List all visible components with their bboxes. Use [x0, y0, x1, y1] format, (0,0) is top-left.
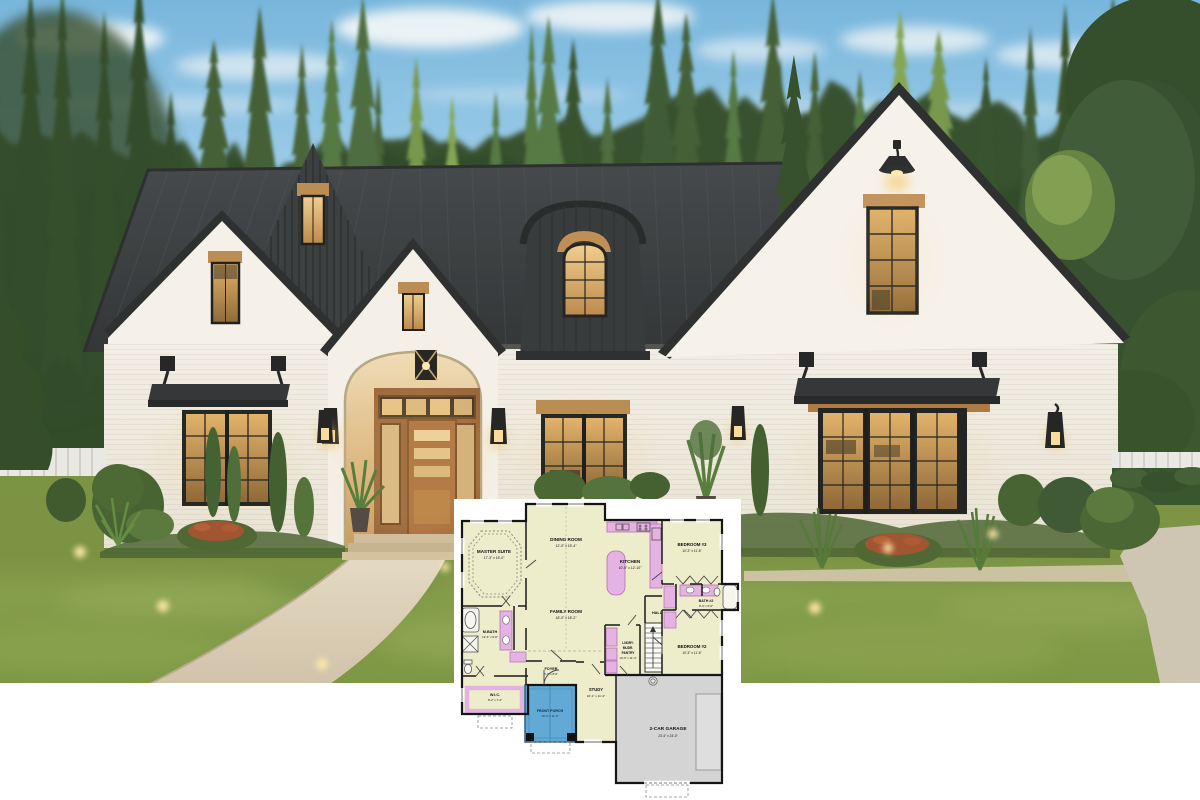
svg-text:BEDROOM #3: BEDROOM #3	[677, 542, 707, 547]
svg-text:12'-0" x 15'-4": 12'-0" x 15'-4"	[556, 544, 578, 548]
svg-text:LNDRY.: LNDRY.	[622, 641, 634, 645]
svg-text:10'-1" x 11'-4": 10'-1" x 11'-4"	[587, 694, 605, 698]
svg-text:PANTRY: PANTRY	[622, 651, 636, 655]
svg-text:W.I.C.: W.I.C.	[490, 693, 500, 697]
svg-text:FRONT PORCH: FRONT PORCH	[537, 709, 564, 713]
svg-text:BEDROOM #2: BEDROOM #2	[677, 644, 707, 649]
svg-text:MASTER SUITE: MASTER SUITE	[477, 549, 511, 554]
svg-text:10'-0" x 11'-0": 10'-0" x 11'-0"	[542, 714, 559, 718]
svg-text:10'-3" x 11'-6": 10'-3" x 11'-6"	[682, 651, 701, 655]
svg-text:13'-4" x 9'-8": 13'-4" x 9'-8"	[482, 635, 498, 639]
svg-text:8'-2" x 7'-4": 8'-2" x 7'-4"	[488, 698, 502, 702]
svg-text:9'-4" x 5'-0": 9'-4" x 5'-0"	[699, 604, 713, 608]
svg-text:MUDR.: MUDR.	[623, 646, 634, 650]
svg-text:DINING ROOM: DINING ROOM	[550, 537, 582, 542]
svg-text:STUDY: STUDY	[589, 687, 603, 692]
svg-text:10'-3" x 11'-6": 10'-3" x 11'-6"	[682, 549, 701, 553]
svg-text:M.BATH: M.BATH	[483, 630, 498, 634]
svg-text:18'-0" x 18'-2": 18'-0" x 18'-2"	[556, 616, 578, 620]
svg-text:BATH #2: BATH #2	[699, 599, 714, 603]
svg-text:HALL: HALL	[652, 611, 663, 615]
svg-text:17'-3" x 15'-0": 17'-3" x 15'-0"	[484, 556, 506, 560]
svg-text:10'-0" x 12'-10": 10'-0" x 12'-10"	[619, 566, 643, 570]
svg-text:10'-0" x 11'-4": 10'-0" x 11'-4"	[620, 656, 637, 660]
svg-text:2-CAR GARAGE: 2-CAR GARAGE	[649, 726, 687, 732]
svg-text:23'-4" x 24'-0": 23'-4" x 24'-0"	[658, 734, 678, 738]
svg-text:KITCHEN: KITCHEN	[620, 559, 641, 564]
svg-text:FAMILY ROOM: FAMILY ROOM	[550, 609, 582, 614]
